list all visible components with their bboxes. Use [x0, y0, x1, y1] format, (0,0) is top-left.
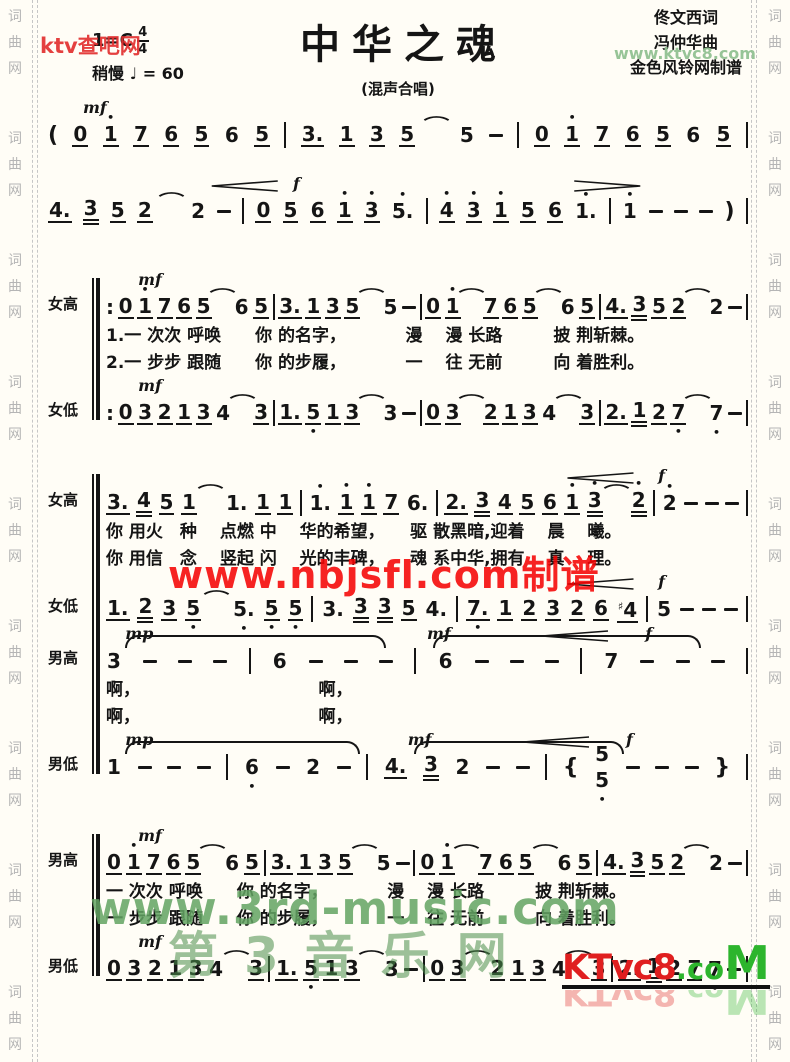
rail-text-group: 词曲网 [8, 10, 22, 76]
duration-dash [379, 660, 393, 663]
barline [599, 400, 601, 426]
slur-arc: ⌒ [684, 841, 710, 862]
sheet-music-page: 词曲网词曲网词曲网词曲网词曲网词曲网词曲网词曲网词曲网 词曲网词曲网词曲网词曲网… [0, 0, 790, 1062]
rail-char: 曲 [768, 402, 782, 416]
duration-dash [516, 766, 530, 769]
barline [746, 122, 748, 148]
duration-dash [728, 412, 742, 415]
note: 1 [297, 851, 313, 875]
duration-dash [684, 502, 698, 505]
note: 5• [264, 597, 280, 621]
voice-label: 女低 [48, 595, 92, 624]
note: 5 [651, 295, 667, 319]
rail-text-group: 词曲网 [8, 254, 22, 320]
note: 6 [685, 124, 701, 146]
lyric-row: 你 用火 种 点燃 中 华的希望， 驱 散黑暗,迎着 晨 曦。 [48, 520, 748, 545]
chord: 55• [594, 743, 610, 791]
note: 4 [136, 489, 152, 517]
note: 6 [593, 597, 609, 621]
note: 0 [534, 123, 550, 147]
voice-label-spacer [48, 537, 92, 545]
lyric-row: 一 次次 呼唤 你 的名字， 漫 漫 长路 披 荆斩棘。 [48, 880, 748, 905]
duration-dash [404, 968, 418, 971]
rail-text-group: 词曲网 [8, 620, 22, 686]
dynamic-mark: mf [138, 378, 162, 394]
note: •1 [564, 123, 580, 147]
note: 5 [519, 491, 535, 515]
rail-char: 网 [8, 794, 22, 808]
duration-dash [138, 766, 152, 769]
duration-dash [680, 608, 694, 611]
note: 5• [288, 597, 304, 621]
voice-label-spacer [48, 564, 92, 572]
duration-dash [475, 660, 489, 663]
note: 3 [631, 293, 647, 321]
slur-arc: ⌒ [685, 285, 711, 306]
octave-dot-above: • [631, 481, 647, 487]
dynamic-mark: mf [83, 100, 107, 116]
rail-char: 词 [768, 620, 782, 634]
rail-char: 曲 [8, 524, 22, 538]
barline [284, 122, 286, 148]
slur-arc: ⌒ [685, 391, 711, 412]
rail-char: 词 [8, 498, 22, 512]
octave-dot-above: • [574, 192, 598, 198]
rail-char: 网 [768, 62, 782, 76]
barline [746, 294, 748, 320]
dynamic-mark: f [658, 468, 665, 484]
note: 7 [157, 295, 173, 319]
music-line: mf032134⌒31.5•13⌒303⌒2134⌒32.127•7• [106, 934, 748, 984]
note: 6 [502, 295, 518, 319]
rail-text-group: 词曲网 [8, 864, 22, 930]
note: 6 [310, 199, 326, 223]
duration-dash [724, 608, 738, 611]
rail-text-group: 词曲网 [768, 864, 782, 930]
note: •1 [103, 123, 119, 147]
octave-dot-above: • [361, 483, 377, 489]
rail-char: 网 [768, 550, 782, 564]
rail-text-group: 词曲网 [8, 742, 22, 808]
duration-dash [705, 502, 719, 505]
credits: 佟文西词 冯仲华曲 金色风铃网制谱 [630, 6, 742, 80]
barline [746, 490, 748, 516]
note: 5 [656, 598, 672, 620]
note: •1 [493, 199, 509, 223]
crescendo-hairpin [523, 630, 627, 642]
note: 2 [669, 851, 685, 875]
music-line: mf0•1765⌒653.135⌒50•1⌒765⌒654.352⌒2 [106, 828, 748, 878]
slur-arc: ⌒ [604, 481, 630, 502]
note: •1 [622, 200, 638, 222]
slur-arc: ⌒ [459, 285, 485, 306]
rail-char: 网 [768, 794, 782, 808]
barline [242, 198, 244, 224]
duration-dash [676, 660, 690, 663]
rail-char: 网 [8, 428, 22, 442]
barline [646, 596, 648, 622]
voice-label-spacer [48, 695, 92, 703]
duration-dash [699, 210, 713, 213]
note: 3 [450, 957, 466, 981]
rail-text-group: 词曲网 [768, 254, 782, 320]
slur-arc: ⌒ [223, 947, 249, 968]
slur-arc: ⌒ [200, 841, 226, 862]
note: 1 [323, 957, 339, 981]
note: •1 [338, 491, 354, 515]
voice-section: 女高mf:0•1765⌒653.135⌒50•1⌒765⌒654.352⌒21.… [48, 272, 748, 428]
note: 5 [194, 123, 210, 147]
slur-arc: ⌒ [566, 947, 592, 968]
rail-char: 网 [768, 916, 782, 930]
note: 1 [339, 123, 355, 147]
slur-arc: ⌒ [459, 391, 485, 412]
note: 3 [83, 197, 99, 225]
note: 2 [157, 401, 173, 425]
rail-char: 曲 [8, 36, 22, 50]
duration-dash [344, 660, 358, 663]
note: 6 [498, 851, 514, 875]
duration-dash [725, 502, 739, 505]
note: 3 [579, 401, 595, 425]
staff-row: 女高mf:0•1765⌒653.135⌒50•1⌒765⌒654.352⌒2 [48, 272, 748, 322]
note: 0 [419, 851, 435, 875]
note: •1 [126, 851, 142, 875]
note: 7• [709, 402, 725, 424]
note: 4. [48, 199, 72, 223]
note: 1 [106, 756, 122, 778]
lyric-line: 啊， 啊， [106, 678, 748, 703]
octave-dot-above: • [364, 191, 380, 197]
voice-label-spacer [48, 341, 92, 349]
note: 3 [474, 489, 490, 517]
note: 5 [376, 852, 392, 874]
barline [423, 956, 425, 982]
rail-text-group: 词曲网 [8, 132, 22, 198]
rail-char: 词 [768, 132, 782, 146]
octave-dot-above: • [622, 192, 638, 198]
rail-char: 词 [768, 986, 782, 1000]
rail-char: 词 [8, 376, 22, 390]
score-content: 1=C 4 4 稍慢 ♩ = 60 中华之魂 (混声合唱) 佟文西词 冯仲华曲 … [48, 0, 748, 986]
note: 5.• [232, 598, 256, 620]
rail-char: 词 [768, 864, 782, 878]
note: 3. [301, 123, 325, 147]
slur-arc: ⌒ [204, 587, 230, 608]
rail-char: 曲 [8, 280, 22, 294]
note: 1 [631, 399, 647, 427]
note: 4 [541, 402, 557, 424]
barline [599, 294, 601, 320]
lyric-line: 2.一 步步 跟随 你 的步履， 一 往 无前 向 着胜利。 [106, 351, 748, 376]
music-line: mf:032134⌒31.5•13⌒303⌒2134⌒32.127•⌒7• [106, 378, 748, 428]
octave-dot-above: • [126, 843, 142, 849]
note: 6 [166, 851, 182, 875]
duration-dash [486, 766, 500, 769]
crescendo-hairpin [209, 180, 281, 192]
rail-char: 网 [8, 62, 22, 76]
rail-text-group: 词曲网 [768, 132, 782, 198]
ktvc8-logo-reflection: KTvc8 .co M [562, 990, 770, 1020]
barline [746, 648, 748, 674]
note: 2 [455, 756, 471, 778]
intro-section: mf(0•1765653.135⌒50•176565f4.352⌒2056•1•… [48, 100, 748, 226]
octave-dot-above: • [662, 484, 678, 490]
music-line: f4.352⌒2056•1•3•5.•4•3•156•1.•1) [48, 176, 748, 226]
barline [653, 490, 655, 516]
duration-dash [213, 660, 227, 663]
rail-char: 曲 [8, 768, 22, 782]
note: 3 [248, 957, 264, 981]
repeat-colon: : [106, 401, 114, 425]
octave-dot-below: • [670, 429, 686, 435]
rail-char: 词 [768, 498, 782, 512]
slur-arc: ⌒ [210, 285, 236, 306]
note: 1 [181, 491, 197, 515]
duration-dash [396, 862, 410, 865]
lyric-row: 1.一 次次 呼唤 你 的名字， 漫 漫 长路 披 荆斩棘。 [48, 324, 748, 349]
note: 5 [382, 296, 398, 318]
note-row: 4.352⌒2056•1•3•5.•4•3•156•1.•1) [48, 196, 748, 226]
note: 5• [305, 401, 321, 425]
note: 0 [106, 851, 122, 875]
rail-char: 网 [768, 1038, 782, 1052]
octave-dot-below: • [709, 430, 725, 436]
barline [746, 400, 748, 426]
duration-dash [197, 766, 211, 769]
slur-arc: ⌒ [454, 841, 480, 862]
bracket-paren: { [563, 755, 579, 780]
dynamic-mark: f [293, 176, 300, 192]
duration-dash [402, 306, 416, 309]
note: 7 [133, 123, 149, 147]
dynamic-mark: mf [138, 828, 162, 844]
barline [611, 956, 613, 982]
rail-text-group: 词曲网 [768, 986, 782, 1052]
note: 1. [106, 597, 130, 621]
duration-dash [489, 134, 503, 137]
note: •1 [137, 295, 153, 319]
note: 6 [176, 295, 192, 319]
barline [413, 850, 415, 876]
note: 4. [425, 598, 449, 620]
note: •1. [308, 492, 332, 514]
rail-text-group: 词曲网 [8, 986, 22, 1052]
decrescendo-hairpin [552, 180, 663, 192]
note: 1 [510, 957, 526, 981]
note: 3 [545, 597, 561, 621]
voice-section: 女高f3.451⌒1.11•1.•1•176.2.3456•1•3⌒•2•2你 … [48, 468, 748, 782]
header: 1=C 4 4 稍慢 ♩ = 60 中华之魂 (混声合唱) 佟文西词 冯仲华曲 … [48, 0, 748, 98]
voice-label: 男高 [48, 647, 92, 676]
slur-arc: ⌒ [536, 285, 562, 306]
note: 7.• [466, 597, 490, 621]
music-line: mf(0•1765653.135⌒50•176565 [48, 100, 748, 150]
note: 2 [708, 852, 724, 874]
rail-char: 曲 [8, 158, 22, 172]
duration-dash [685, 766, 699, 769]
duration-dash [711, 660, 725, 663]
lyric-row: 一 步步 跟随 你 的步履， 一 往 无前 向 着胜利。 [48, 907, 748, 932]
duration-dash [626, 766, 640, 769]
note: 7 [383, 491, 399, 515]
note: 2 [569, 597, 585, 621]
rail-char: 词 [8, 620, 22, 634]
lyric-line: 你 用火 种 点燃 中 华的希望， 驱 散黑暗,迎着 晨 曦。 [106, 520, 748, 545]
staff-row: 女低f1.235•⌒5.•5•5•3.3354.7.•12326♯45 [48, 574, 748, 624]
expression-marks: mf [48, 100, 748, 120]
system-bracket [92, 474, 100, 774]
voice-label: 女低 [48, 399, 92, 428]
note: 2. [444, 491, 468, 515]
note: 5 [399, 123, 415, 147]
rail-char: 词 [8, 864, 22, 878]
note-row: :032134⌒31.5•13⌒303⌒2134⌒32.127•⌒7• [106, 398, 748, 428]
bracket-paren: ( [48, 123, 58, 148]
lyric-row: 啊， 啊， [48, 678, 748, 703]
note: 1. [225, 492, 249, 514]
note: 5• [185, 597, 201, 621]
note: 6 [272, 650, 288, 672]
voice-label: 女高 [48, 489, 92, 518]
rail-char: 曲 [768, 768, 782, 782]
rail-char: 词 [8, 132, 22, 146]
staff-row: 男低mpmff16•24.32{55•} [48, 732, 748, 782]
duration-dash [640, 660, 654, 663]
note: 1 [305, 295, 321, 319]
note: •5. [391, 200, 415, 222]
note: •3 [466, 199, 482, 223]
note: 6 [556, 852, 572, 874]
note: 0 [118, 295, 134, 319]
rail-char: 词 [8, 254, 22, 268]
music-line: mpmff16•24.32{55•} [106, 732, 748, 782]
note: •1 [564, 491, 580, 515]
rail-char: 曲 [768, 158, 782, 172]
system-bracket [92, 834, 100, 976]
rail-char: 曲 [768, 890, 782, 904]
barline [300, 490, 302, 516]
note: 3 [530, 957, 546, 981]
repeat-colon: : [106, 295, 114, 319]
slur-arc: ⌒ [159, 189, 185, 210]
note: 2 [651, 401, 667, 425]
note: •1. [574, 200, 598, 222]
expression-marks: mf [106, 272, 748, 292]
octave-dot-above: • [439, 191, 455, 197]
lyric-line: 一 次次 呼唤 你 的名字， 漫 漫 长路 披 荆斩棘。 [106, 880, 748, 905]
note: 6 [438, 650, 454, 672]
duration-dash [728, 862, 742, 865]
barline [273, 400, 275, 426]
music-line: mf:0•1765⌒653.135⌒50•1⌒765⌒654.352⌒2 [106, 272, 748, 322]
left-rail-text: 词曲网词曲网词曲网词曲网词曲网词曲网词曲网词曲网词曲网 [8, 0, 22, 1062]
octave-dot-above: • [103, 115, 119, 121]
note: 5 [253, 295, 269, 319]
voice-section: 男高mf0•1765⌒653.135⌒50•1⌒765⌒654.352⌒2一 次… [48, 828, 748, 984]
note: 3. [106, 491, 130, 515]
rail-char: 曲 [768, 280, 782, 294]
note-row: 032134⌒31.5•13⌒303⌒2134⌒32.127•7• [106, 954, 748, 984]
note: 2. [604, 401, 628, 425]
duration-dash [655, 766, 669, 769]
note: 1. [275, 957, 299, 981]
barline [426, 198, 428, 224]
voice-label-spacer [48, 897, 92, 905]
note: 4 [215, 402, 231, 424]
voice-label: 男低 [48, 955, 92, 984]
note: 0 [106, 957, 122, 981]
rail-text-group: 词曲网 [768, 742, 782, 808]
note: 1 [502, 401, 518, 425]
duration-dash [309, 660, 323, 663]
note: 4 [208, 958, 224, 980]
rail-char: 网 [8, 1038, 22, 1052]
expression-marks: mpmff [106, 732, 748, 752]
expression-marks: mpmff [106, 626, 748, 646]
expression-marks: mf [106, 934, 748, 954]
lyric-row: 2.一 步步 跟随 你 的步履， 一 往 无前 向 着胜利。 [48, 351, 748, 376]
note: •1 [439, 851, 455, 875]
duration-dash [167, 766, 181, 769]
rail-char: 曲 [8, 890, 22, 904]
note: 7• [687, 957, 703, 981]
note: 6 [542, 491, 558, 515]
rail-char: 网 [8, 916, 22, 930]
note: 3 [344, 957, 360, 981]
note: 7 [483, 295, 499, 319]
score: mf(0•1765653.135⌒50•176565f4.352⌒2056•1•… [48, 100, 748, 984]
tie-arc [125, 741, 360, 754]
slur-arc: ⌒ [229, 391, 255, 412]
note: 3 [317, 851, 333, 875]
slur-arc: ⌒ [532, 841, 558, 862]
rail-text-group: 词曲网 [768, 10, 782, 76]
duration-dash [727, 968, 741, 971]
duration-dash [143, 660, 157, 663]
staff-row: mf(0•1765653.135⌒50•176565 [48, 100, 748, 150]
note: 5 [401, 597, 417, 621]
expression-marks: mf [106, 378, 748, 398]
note-row: :0•1765⌒653.135⌒50•1⌒765⌒654.352⌒2 [106, 292, 748, 322]
rail-text-group: 词曲网 [768, 620, 782, 686]
octave-dot-above: • [564, 483, 580, 489]
staff-row: f4.352⌒2056•1•3•5.•4•3•156•1.•1) [48, 176, 748, 226]
rail-char: 网 [768, 428, 782, 442]
barline [273, 294, 275, 320]
voice-label: 男低 [48, 753, 92, 782]
note: 4. [602, 851, 626, 875]
barline [264, 850, 266, 876]
credit-lyricist: 佟文西词 [630, 6, 742, 31]
rail-char: 词 [768, 376, 782, 390]
note: 2 [521, 597, 537, 621]
note: •1 [361, 491, 377, 515]
note: 3 [522, 401, 538, 425]
note: 1 [497, 597, 513, 621]
lyric-line: 你 用信 念 竖起 闪 光的丰碑， 魂 系中华,拥有 真 理。 [106, 547, 748, 572]
rail-char: 网 [8, 184, 22, 198]
octave-dot-above: • [564, 115, 580, 121]
octave-dot-below: • [707, 986, 723, 992]
rail-char: 词 [8, 986, 22, 1000]
note: 0 [425, 401, 441, 425]
note: 4 [497, 491, 513, 515]
octave-dot-above: • [137, 287, 153, 293]
note: 3 [384, 958, 400, 980]
note: 5 [159, 491, 175, 515]
note: 0 [429, 957, 445, 981]
